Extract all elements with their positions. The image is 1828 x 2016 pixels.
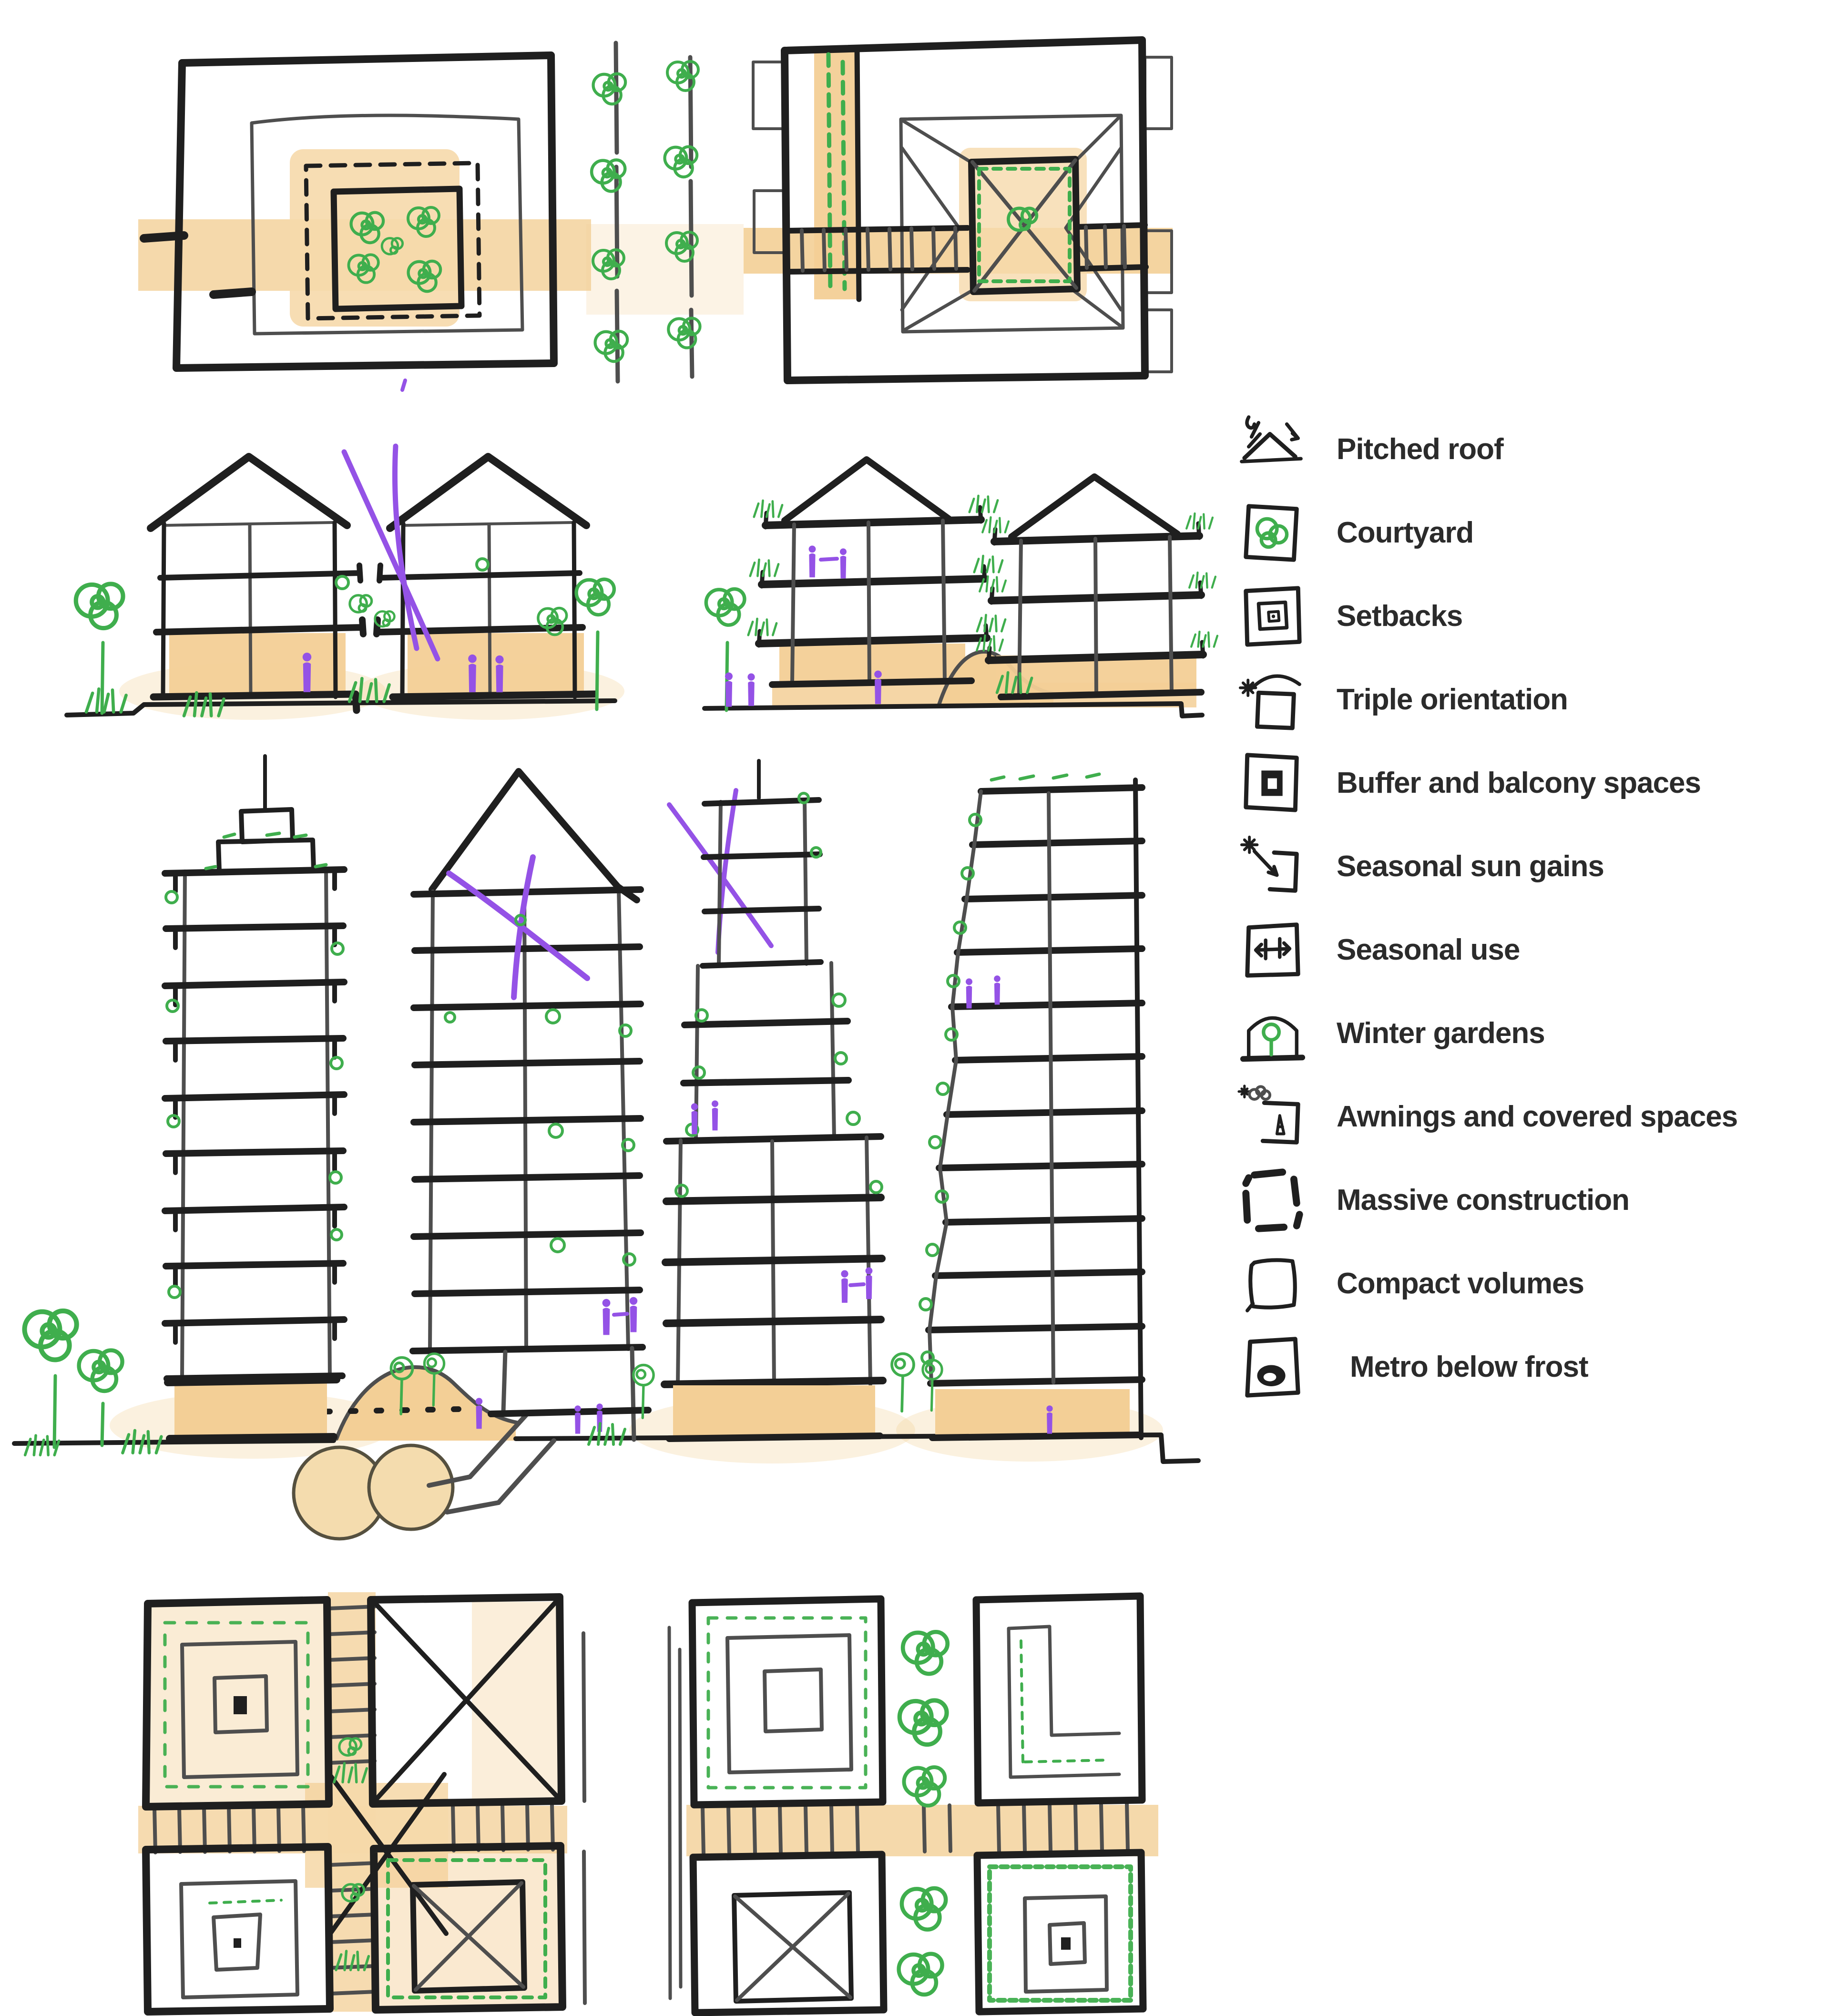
- setbacks-icon: [1230, 581, 1316, 652]
- courtyard-icon: [1230, 498, 1316, 568]
- section-courtyard-houses-sketch: [62, 443, 624, 720]
- legend-label: Pitched roof: [1337, 432, 1503, 466]
- plan-four-blocks-green-sketch: [663, 1592, 1158, 2012]
- legend-label: Compact volumes: [1337, 1267, 1584, 1300]
- street-trees-sketch: [586, 10, 744, 391]
- legend-item-courtyard: Courtyard: [1230, 491, 1828, 574]
- legend-item-seasonal-sun-gains: Seasonal sun gains: [1230, 825, 1828, 908]
- section-towers-sketch: [0, 748, 1201, 1559]
- seasonal-sun-gains-icon: [1230, 831, 1316, 902]
- legend-label: Seasonal use: [1337, 933, 1520, 967]
- legend-label: Setbacks: [1337, 599, 1462, 633]
- massive-construction-icon: [1230, 1165, 1316, 1236]
- legend-item-metro-below-frost: Metro below frost: [1230, 1325, 1828, 1409]
- legend-item-winter-gardens: Winter gardens: [1230, 992, 1828, 1075]
- metro-below-frost-icon: [1230, 1332, 1316, 1402]
- pitched-roof-icon: [1230, 414, 1316, 485]
- legend-item-buffer-balcony: Buffer and balcony spaces: [1230, 741, 1828, 825]
- legend-label: Triple orientation: [1337, 683, 1568, 716]
- sketch-diagram-page: Pitched roof Courtyard Setbacks Triple o…: [0, 0, 1828, 2016]
- plan-courtyard-block-sketch: [138, 14, 591, 391]
- plan-four-blocks-crossing-sketch: [138, 1592, 605, 2016]
- legend-label: Awnings and covered spaces: [1337, 1100, 1737, 1134]
- legend-item-setbacks: Setbacks: [1230, 574, 1828, 658]
- legend-label: Metro below frost: [1337, 1350, 1588, 1384]
- legend-item-triple-orientation: Triple orientation: [1230, 658, 1828, 741]
- legend-item-pitched-roof: Pitched roof: [1230, 408, 1828, 491]
- winter-gardens-icon: [1230, 998, 1316, 1069]
- legend-label: Courtyard: [1337, 516, 1473, 550]
- seasonal-use-icon: [1230, 915, 1316, 985]
- triple-orientation-icon: [1230, 665, 1316, 735]
- compact-volumes-icon: [1230, 1248, 1316, 1319]
- legend-item-massive-construction: Massive construction: [1230, 1158, 1828, 1242]
- section-balcony-buildings-sketch: [701, 443, 1215, 720]
- legend-item-seasonal-use: Seasonal use: [1230, 908, 1828, 992]
- legend-item-compact-volumes: Compact volumes: [1230, 1242, 1828, 1325]
- legend-item-awnings-covered-spaces: Awnings and covered spaces: [1230, 1075, 1828, 1158]
- buffer-balcony-icon: [1230, 748, 1316, 819]
- legend-label: Winter gardens: [1337, 1016, 1545, 1050]
- legend-label: Massive construction: [1337, 1183, 1629, 1217]
- legend-label: Buffer and balcony spaces: [1337, 766, 1701, 800]
- legend-label: Seasonal sun gains: [1337, 849, 1604, 883]
- plan-hip-roof-block-sketch: [744, 5, 1173, 400]
- awnings-covered-spaces-icon: [1230, 1082, 1316, 1152]
- legend: Pitched roof Courtyard Setbacks Triple o…: [1230, 408, 1828, 1409]
